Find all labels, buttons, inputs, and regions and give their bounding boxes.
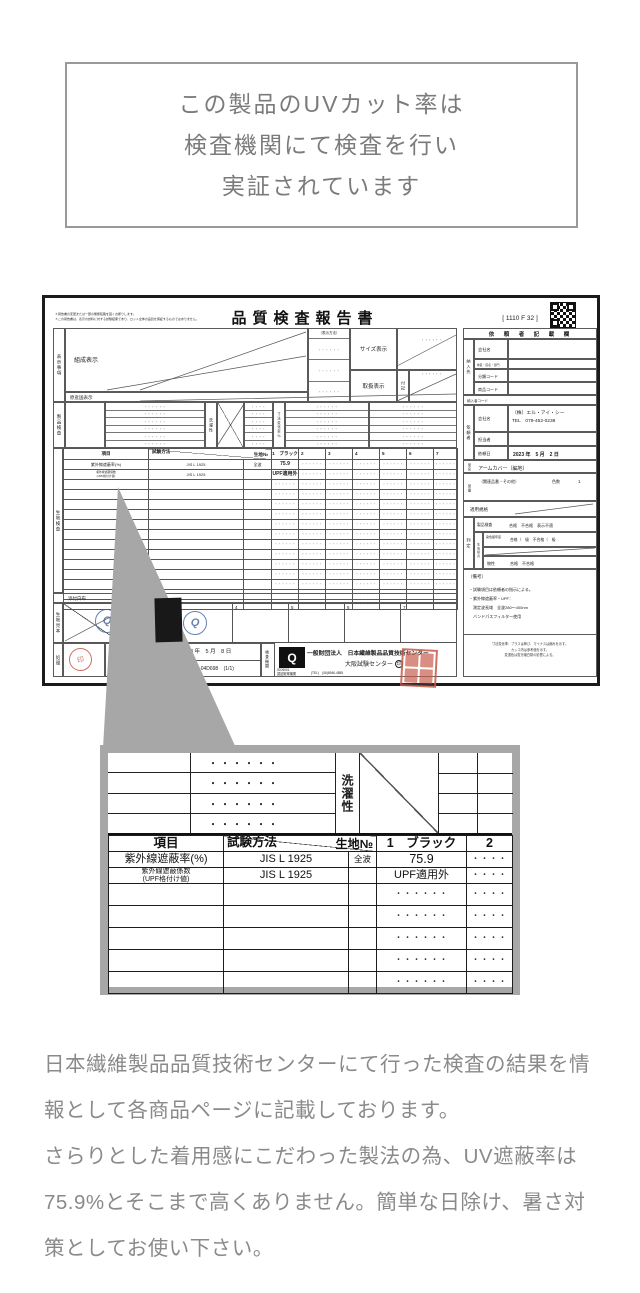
applicable-standard-label: 適用規格 <box>470 507 488 513</box>
dotted-row: ・・・・・・ <box>106 433 204 441</box>
small-dots-col: ・・・・・・・・・・・・・・・・・・・・・・・・ <box>244 402 273 448</box>
dotted-value: ・・・・・・ <box>434 510 458 520</box>
dotted-value: ・・・・・・ <box>434 570 458 580</box>
dotted-value: ・・・・・・ <box>353 520 380 530</box>
upf-label: 紫外線遮蔽係数(UPF格付け値) <box>64 470 149 480</box>
footer-paragraph: さらりとした着用感にこだわった製法の為、UV遮蔽率は75.9%とそこまで高くあり… <box>44 1134 602 1272</box>
header-label: 試験方法 <box>152 450 170 455</box>
table-cell <box>244 520 272 530</box>
dotted-value: ・・・・・・ <box>407 510 434 520</box>
dotted-value: ・・・・ <box>467 928 513 950</box>
col-header-sample: 2 <box>299 449 326 460</box>
dotted-value: ・・・・・・ <box>272 550 299 560</box>
dotted-value: ・・・・・・ <box>353 500 380 510</box>
dotted-value: ・・・・・・ <box>380 540 407 550</box>
table-cell <box>244 510 272 520</box>
swatch-number: 2 <box>123 605 126 610</box>
intro-line: 実証されています <box>222 166 421 207</box>
diagonal-cell <box>217 402 244 448</box>
dotted-row: ・・・・・・ <box>370 433 456 441</box>
detail-results-table: 項目試験方法生地№1 ブラック2紫外線遮蔽率(%)JIS L 1925全波75.… <box>108 835 513 994</box>
dotted-value: ・・・・・・ <box>272 510 299 520</box>
dotted-value: ・・・・・・ <box>421 338 442 343</box>
footnote-line: カッコ内は参考値を示す。 <box>511 648 549 652</box>
dotted-value: ・・・・・・ <box>299 460 326 470</box>
inspection-org-branch: 大阪試験センター 印 <box>345 659 403 668</box>
table-cell <box>64 480 149 490</box>
dotted-row: ・・・・・・ <box>106 403 204 411</box>
dotted-value: ・・・・・・ <box>272 530 299 540</box>
related-number-label: （関連品番・その他） <box>479 479 519 485</box>
dotted-value: ・・・・・・ <box>299 510 326 520</box>
table-cell <box>64 570 149 580</box>
table-cell <box>64 490 149 500</box>
dotted-value: ・・・・・・ <box>353 490 380 500</box>
dimension-dots-a: ・・・・・・・・・・・・・・・・・・・・・・・・・・・・・・・・・・・・ <box>285 402 369 448</box>
table-cell <box>244 530 272 540</box>
dotted-row: ・・・・・・ <box>370 403 456 411</box>
detail-washing-label: 洗濯性 <box>335 753 360 833</box>
dotted-row: ・・・・・・ <box>309 339 349 360</box>
report-issue-date: 2023 年 5 月 8 日 <box>152 644 260 661</box>
product-number-row: 品番 （関連品番・その他） 色数 1 <box>463 473 597 501</box>
field-label-cell: 地区・店名・部門 <box>474 359 508 369</box>
swatch-cell: 7 <box>400 604 456 642</box>
dotted-row: ・・・・・・ <box>370 441 456 448</box>
detail-top-dotted-rows: ・・・・・・・・・・・・・・・・・・・・・・・・ <box>108 753 335 833</box>
col-header-sample1: 1 ブラック <box>272 449 299 460</box>
detail-grid-line <box>477 753 478 833</box>
header-label: 生地№ <box>254 453 268 458</box>
dotted-value: ・・・・・・ <box>299 500 326 510</box>
dotted-row: ・・・・ <box>245 418 272 426</box>
dotted-row: ・・・・・・ <box>370 426 456 434</box>
detail-grid-line <box>190 753 191 833</box>
field-label-cell: 担当者 <box>474 432 508 446</box>
swatch-cell: 5 <box>288 604 344 642</box>
intro-line: 検査機関にて検査を行い <box>184 125 459 166</box>
table-cell <box>109 884 224 906</box>
seal-glyph <box>405 652 419 667</box>
dotted-row: ・・・・・・ <box>106 426 204 434</box>
judgement-row-value: 合格 不合格 <box>510 561 534 567</box>
table-cell <box>109 906 224 928</box>
dotted-value: ・・・・・・ <box>434 580 458 590</box>
table-cell <box>244 570 272 580</box>
field-value-cell <box>508 369 597 382</box>
uv-shielding-rate-label: 紫外線遮蔽率(%) <box>64 460 149 470</box>
report-number: № 23-CS-04D698 <box>178 666 218 672</box>
swatch-number: 7 <box>403 605 406 610</box>
judgement-row-label: 製品検査 <box>477 523 492 528</box>
applicable-standard-row: 適用規格 <box>463 501 597 517</box>
dotted-value: ・・・・・・ <box>326 520 353 530</box>
table-cell <box>109 950 224 972</box>
page: { "colors":{"frame_gray":"#a7a7a7","text… <box>0 0 640 1293</box>
dotted-value: ・・・・・・ <box>377 950 467 972</box>
remarks-heading: （備考） <box>468 574 486 580</box>
dotted-value: ・・・・・・ <box>353 550 380 560</box>
section-label-fabric-sample: 生地見本 <box>53 603 63 643</box>
table-cell <box>224 928 349 950</box>
dotted-value: ・・・・・・ <box>377 972 467 994</box>
dotted-row: ・・・・・・ <box>370 411 456 419</box>
field-value-cell <box>508 339 597 359</box>
cell-line: (UPF格付け値) <box>64 475 148 478</box>
dotted-value: ・・・・・・ <box>272 480 299 490</box>
supplier-code-label: 納入者コード <box>467 399 488 404</box>
uv-shielding-rate-value: 75.9 <box>272 460 299 470</box>
col-header-sample: 3 <box>326 449 353 460</box>
footnote-block: 寸法変化率：プラスは伸び、マイナスは縮みを示す。 カッコ内は参考値を示す。 変退… <box>465 642 595 659</box>
seal-glyph <box>420 653 434 668</box>
fabric-swatch-black <box>154 598 182 643</box>
table-cell <box>244 490 272 500</box>
dotted-row: ・・・・ <box>245 441 272 448</box>
section-label-product-inspection: 製品検査 <box>53 402 65 448</box>
swatch-number: 4 <box>235 605 238 610</box>
dotted-value: ・・・・・・ <box>272 520 299 530</box>
footer-text: 日本繊維製品品質技術センターにて行った検査の結果を情報として各商品ページに記載し… <box>44 1042 602 1272</box>
intro-box: この製品のUVカット率は 検査機関にて検査を行い 実証されています <box>65 62 578 228</box>
delivery-dest-label: 納入先 <box>463 339 474 395</box>
dotted-value: ・・・・・・ <box>272 560 299 570</box>
remarks-line: ・試験項目は依頼者の指示による。 <box>469 587 533 592</box>
dotted-row: ・・・・・・ <box>108 814 335 833</box>
composition-label: 組成表示 <box>74 355 98 364</box>
dotted-row: ・・・・ <box>245 426 272 434</box>
dotted-value: ・・・・・・ <box>407 580 434 590</box>
dotted-value: ・・・・・・ <box>326 570 353 580</box>
dotted-value: ・・・・・・ <box>299 480 326 490</box>
field-label-cell: 会社名 <box>474 405 508 432</box>
qr-corner <box>551 319 559 327</box>
dotted-value: ・・・・・・ <box>272 500 299 510</box>
field-label: 分類コード <box>478 374 498 380</box>
footer-paragraph: 日本繊維製品品質技術センターにて行った検査の結果を情報として各商品ページに記載し… <box>44 1042 602 1134</box>
table-cell <box>149 520 244 530</box>
dotted-row: ・・・・ <box>245 433 272 441</box>
table-cell <box>64 520 149 530</box>
col-header-sample: 4 <box>353 449 380 460</box>
attached-cloth-label: 添付白布 <box>68 596 86 602</box>
dotted-value: ・・・・・・ <box>434 490 458 500</box>
test-method: JIS L 1925 <box>149 470 244 480</box>
table-cell <box>64 550 149 560</box>
detail-col-header-sample2: 2 <box>467 836 513 852</box>
dotted-value: ・・・・・・ <box>380 570 407 580</box>
field-label: 担当者 <box>478 437 491 443</box>
dotted-value: ・・・・・・ <box>353 460 380 470</box>
judgement-row-label: 物性 <box>487 561 495 567</box>
section-label-fabric-inspection: 生地検査 <box>53 448 63 593</box>
field-label: 商品コード <box>478 387 498 393</box>
detail-diagonal-cell <box>360 753 438 833</box>
dotted-value: ・・・・ <box>467 950 513 972</box>
size-display-cell: サイズ表示 <box>350 328 397 370</box>
field-label: 会社名 <box>478 347 491 353</box>
composition-cell: 組成表示 <box>65 328 308 392</box>
dotted-value: ・・・・・・ <box>272 540 299 550</box>
dotted-value: ・・・・・・ <box>407 530 434 540</box>
table-cell <box>149 490 244 500</box>
remarks-line: ・紫外線遮蔽率・UPF： <box>469 596 513 601</box>
fine-print-line: ＊報告書の変更または一部の無断転載を固くお断りします。 <box>55 312 136 316</box>
field-label: 依頼日 <box>478 451 491 457</box>
dotted-value: ・・・・・・ <box>299 530 326 540</box>
dotted-value: ・・・・・・ <box>380 560 407 570</box>
dotted-value: ・・・・・・ <box>377 928 467 950</box>
detail-upf-value: UPF適用外 <box>377 868 467 884</box>
qr-code-icon <box>550 302 576 328</box>
fabric-swatch-row: 234567 <box>63 603 457 643</box>
wave-range <box>244 470 272 480</box>
dotted-value: ・・・・・・ <box>380 500 407 510</box>
detail-test-method: JIS L 1925 <box>224 852 349 868</box>
requester-tel: TEL 079-452-0238 <box>512 419 555 424</box>
header-label: 生地№ <box>336 838 373 851</box>
dotted-value: ・・・・・・ <box>407 570 434 580</box>
dotted-value: ・・・・・・ <box>326 460 353 470</box>
dotted-value: ・・・・・・ <box>407 560 434 570</box>
dotted-value: ・・・・・・ <box>380 520 407 530</box>
detail-grid-line <box>439 813 513 814</box>
table-cell <box>149 480 244 490</box>
table-cell <box>149 530 244 540</box>
product-number-label: 品番 <box>465 476 474 500</box>
dotted-value: ・・・・・・ <box>272 580 299 590</box>
detail-col-header-method: 試験方法生地№ <box>224 836 377 852</box>
dotted-value: ・・・・・・ <box>380 470 407 480</box>
detail-right-cells <box>438 753 512 833</box>
empty-cell <box>65 402 105 448</box>
dotted-value: ・・・・ <box>467 852 513 868</box>
dotted-value: ・・・・・・ <box>353 530 380 540</box>
col-header-sample: 6 <box>407 449 434 460</box>
dotted-value: ・・・・・・ <box>380 510 407 520</box>
requester-company-cell: （株）エル・アイ・シー TEL 079-452-0238 <box>508 405 597 432</box>
dotted-value: ・・・・・・ <box>299 580 326 590</box>
dotted-row: ・・・・・・ <box>108 794 335 814</box>
field-label-cell: 依頼日 <box>474 446 508 460</box>
detail-col-header-sample1: 1 ブラック <box>377 836 467 852</box>
dotted-value: ・・・・・・ <box>407 500 434 510</box>
dotted-row: ・・・・・・ <box>286 441 368 448</box>
dotted-row: ・・・・・・ <box>286 418 368 426</box>
table-cell <box>349 972 377 994</box>
judgement-row: 製品検査 合格 不合格 表示不適 <box>474 517 597 532</box>
dotted-row: ・・・・・・ <box>106 418 204 426</box>
size-diag-area <box>397 328 457 370</box>
dotted-value: ・・・・ <box>467 884 513 906</box>
dotted-value: ・・・・・・ <box>272 570 299 580</box>
table-cell <box>224 972 349 994</box>
dotted-row: ・・・・ <box>245 411 272 419</box>
display-method-label: （表示方法） <box>309 329 349 339</box>
dotted-row: ・・・・・・ <box>286 426 368 434</box>
table-cell <box>64 560 149 570</box>
red-square-seal-icon <box>400 648 438 688</box>
field-label: 地区・店名・部門 <box>477 363 499 367</box>
dotted-row: ・・・・・・ <box>106 441 204 448</box>
judgement-row-label: 染色堅牢度 <box>486 536 508 540</box>
washing-col-label: 洗濯性 <box>205 402 217 448</box>
dotted-value: ・・・・・・ <box>380 480 407 490</box>
dotted-value: ・・・・・・ <box>407 540 434 550</box>
col-header-item: 項目 <box>64 449 149 460</box>
detail-grid-line <box>439 773 513 774</box>
table-cell <box>149 560 244 570</box>
request-date-cell: 2023 年 5 月 2 日 <box>508 446 597 460</box>
dotted-value: ・・・・ <box>467 868 513 884</box>
dotted-row: ・・・・・・ <box>286 403 368 411</box>
table-cell <box>224 906 349 928</box>
report-pages: (1/1) <box>224 666 234 672</box>
origin-country-cell: 原産国表示 <box>65 392 308 402</box>
table-cell <box>349 950 377 972</box>
dotted-value: ・・・・・・ <box>407 490 434 500</box>
dotted-value: ・・・・・・ <box>434 480 458 490</box>
table-cell <box>149 570 244 580</box>
dotted-value: ・・・・・・ <box>326 560 353 570</box>
dotted-value: ・・・・・・ <box>434 460 458 470</box>
dotted-value: ・・・・・・ <box>326 500 353 510</box>
swatch-number: 6 <box>347 605 350 610</box>
report-number-line: № 23-CS-04D698 (1/1) <box>152 661 260 677</box>
detail-test-method: JIS L 1925 <box>224 868 349 884</box>
field-value-cell <box>508 432 597 446</box>
col-header-sample: 7 <box>434 449 458 460</box>
table-cell <box>349 928 377 950</box>
table-cell <box>244 500 272 510</box>
origin-country-label: 原産国表示 <box>70 395 93 401</box>
table-cell <box>244 580 272 590</box>
section-label-processing: 処理 <box>53 643 63 677</box>
dotted-value: ・・・・・・ <box>299 520 326 530</box>
dotted-value: ・・・・・・ <box>434 560 458 570</box>
dotted-row: ・・・・・・ <box>370 418 456 426</box>
dotted-value: ・・・・・・ <box>434 540 458 550</box>
detail-uv-rate-label: 紫外線遮蔽率(%) <box>109 852 224 868</box>
table-cell <box>149 540 244 550</box>
field-label-cell: 分類コード <box>474 369 508 382</box>
table-cell <box>109 972 224 994</box>
detail-uv-rate-value: 75.9 <box>377 852 467 868</box>
dotted-value: ・・・・・・ <box>353 560 380 570</box>
judgement-row: 物性 合格 不合格 <box>483 556 597 569</box>
table-cell <box>244 560 272 570</box>
judgement-row: 染色堅牢度 合格（ 級 不合格（ 級 <box>483 532 597 547</box>
qr-corner <box>567 303 575 311</box>
requester-company: （株）エル・アイ・シー <box>512 411 565 416</box>
dotted-value: ・・・・・・ <box>299 570 326 580</box>
dotted-value: ・・・・・・ <box>434 470 458 480</box>
dotted-value: ・・・・・・ <box>407 480 434 490</box>
dotted-row: ・・・・・・ <box>106 411 204 419</box>
table-cell <box>149 550 244 560</box>
dotted-value: ・・・・・・ <box>353 540 380 550</box>
color-count-label: 色数 <box>552 479 560 485</box>
dotted-value: ・・・・・・ <box>299 550 326 560</box>
dotted-row: ・・・・ <box>245 403 272 411</box>
table-cell <box>149 500 244 510</box>
qtec-square-logo-icon: Q <box>279 647 305 668</box>
section-label-inspection-org: 検査機関 <box>261 643 275 677</box>
care-display-cell: 取扱表示 <box>350 370 397 402</box>
judgement-label: 判定 <box>463 517 474 569</box>
col-header-sample: 5 <box>380 449 407 460</box>
form-code: [ 1110 F 32 ] <box>488 315 552 322</box>
field-value-cell <box>508 359 597 369</box>
seal-glyph <box>419 669 433 684</box>
product-name-row: 品名 アームカバー（編地） <box>463 460 597 473</box>
wave-range: 全波 <box>244 460 272 470</box>
swatch-cell: 6 <box>344 604 400 642</box>
dotted-value: ・・・・・・ <box>326 550 353 560</box>
detail-wave-range <box>349 868 377 884</box>
dotted-value: ・・・・・・ <box>421 372 442 377</box>
swatch-number: 5 <box>291 605 294 610</box>
client-panel-heading: 依 頼 者 記 載 欄 <box>463 328 597 339</box>
footnote-line: 寸法変化率：プラスは伸び、マイナスは縮みを示す。 <box>492 642 568 646</box>
dotted-value: ・・・・・・ <box>353 510 380 520</box>
dotted-value: ・・・・ <box>467 906 513 928</box>
inspection-report-scan: ＊報告書の変更または一部の無断転載を固くお断りします。 ＊この報告書は、表示の試… <box>42 295 600 686</box>
processing-cell <box>105 643 151 677</box>
table-cell <box>349 906 377 928</box>
table-cell <box>349 884 377 906</box>
col-header-method: 試験方法生地№ <box>149 449 272 460</box>
dotted-value: ・・・・・・ <box>299 540 326 550</box>
table-cell <box>244 540 272 550</box>
cell-line: (UPF格付け値) <box>109 876 223 884</box>
cell-line: 紫外線遮蔽係数 <box>109 868 223 876</box>
remarks-line: バンドパスフィルター使用 <box>469 614 521 619</box>
dotted-value: ・・・・・・ <box>299 470 326 480</box>
fine-print-line: ＊この報告書は、表示の試料に対する試験結果であり、ロット全体の品質を保証するもの… <box>55 317 199 321</box>
report-title: 品質検査報告書 <box>185 307 425 328</box>
dotted-value: ・・・・・・ <box>326 580 353 590</box>
field-label-cell: 会社名 <box>474 339 508 359</box>
dotted-row: ・・・・・・ <box>309 382 349 402</box>
detail-grid-line <box>439 793 513 794</box>
footnote-line: 変退色は蛍光増白剤の影響による。 <box>505 653 556 657</box>
dotted-value: ・・・・ <box>467 972 513 994</box>
table-cell <box>149 510 244 520</box>
iso-certification: ISO9001 認証取得機関 <box>277 669 309 676</box>
org-telephone: (TEL) (06)6946-4855 <box>311 670 343 675</box>
seal-glyph <box>404 668 418 683</box>
dotted-value: ・・・・・・ <box>326 540 353 550</box>
test-method: JIS L 1925 <box>149 460 244 470</box>
table-cell <box>244 480 272 490</box>
request-date: 2023 年 5 月 2 日 <box>513 451 559 458</box>
dotted-value: ・・・・・・ <box>380 490 407 500</box>
dotted-value: ・・・・・・ <box>353 580 380 590</box>
dotted-value: ・・・・・・ <box>434 530 458 540</box>
judgement-row-value: 合格（ 級 不合格（ 級 <box>510 538 556 543</box>
requester-label: 依頼者 <box>463 405 474 460</box>
dotted-value: ・・・・・・ <box>353 570 380 580</box>
remarks-line: 測定波長域 全波280〜400nm <box>469 605 528 610</box>
product-name: アームカバー（編地） <box>478 465 528 472</box>
dotted-value: ・・・・・・ <box>299 490 326 500</box>
dotted-value: ・・・・・・ <box>407 550 434 560</box>
table-cell <box>64 540 149 550</box>
upf-value: UPF適用外 <box>272 470 299 480</box>
table-cell <box>244 550 272 560</box>
dotted-value: ・・・・・・ <box>326 470 353 480</box>
